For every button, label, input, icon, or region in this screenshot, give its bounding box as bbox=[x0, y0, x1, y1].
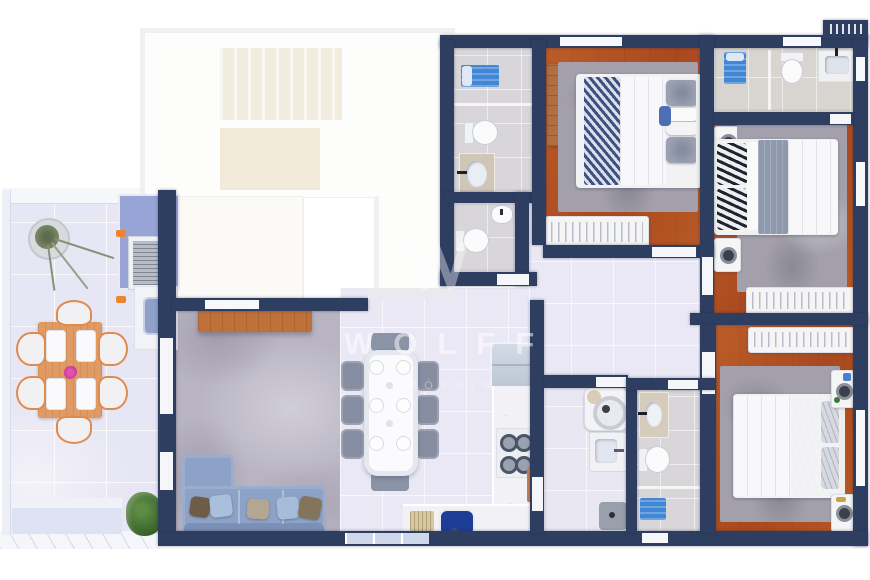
dish-rack bbox=[410, 511, 434, 531]
bath-right-towel bbox=[726, 53, 744, 61]
terrace-bench bbox=[12, 498, 122, 534]
master-wardrobe-hangers bbox=[754, 332, 850, 347]
window-east-3 bbox=[856, 410, 865, 486]
window-east-1 bbox=[856, 57, 865, 81]
master-decor-gold bbox=[836, 497, 846, 502]
wall-laundry-ensuite bbox=[626, 388, 637, 533]
laundry-sink bbox=[589, 432, 629, 472]
table-runner-dot bbox=[386, 382, 393, 389]
bedroom2-wardrobe-hangers bbox=[752, 292, 850, 309]
bath-right-basin bbox=[825, 56, 849, 74]
washing-machine bbox=[584, 387, 628, 431]
plate-2 bbox=[396, 360, 411, 375]
place-setting-2 bbox=[76, 330, 96, 362]
bath-top-towel bbox=[462, 66, 472, 86]
bedroom2-wardrobe bbox=[746, 287, 856, 315]
faint-room-b bbox=[303, 197, 375, 302]
plate-1 bbox=[369, 360, 384, 375]
window-north-bath-right bbox=[783, 37, 821, 46]
faint-bed bbox=[220, 128, 320, 190]
glass-door-living bbox=[345, 533, 429, 544]
door-laundry bbox=[596, 377, 626, 387]
bedroom1-accent-pillow bbox=[659, 106, 671, 126]
laundry-faucet bbox=[614, 449, 624, 452]
bath-top-glass bbox=[453, 103, 533, 106]
door-bedroom2 bbox=[702, 257, 713, 295]
window-north-bedroom1 bbox=[560, 37, 622, 46]
master-lamp-bottom bbox=[836, 505, 853, 522]
ensuite-toilet-bowl bbox=[645, 446, 670, 473]
plate-6 bbox=[396, 436, 411, 451]
sofa-pillow-blue-2 bbox=[276, 496, 300, 520]
master-duvet bbox=[733, 396, 791, 496]
wall-bedroom2-south bbox=[690, 313, 868, 325]
bedroom1-pillow-gray-1 bbox=[666, 80, 698, 106]
unfinished-area bbox=[140, 28, 455, 302]
ac-fins bbox=[830, 24, 864, 34]
patio-chair-right-1 bbox=[98, 332, 128, 366]
bath-right-toilet-bowl bbox=[781, 59, 803, 84]
ensuite-faucet bbox=[638, 412, 647, 415]
master-wardrobe bbox=[748, 327, 856, 353]
bedroom2-zebra-pillow-1 bbox=[716, 142, 748, 186]
master-pillow-2 bbox=[820, 446, 841, 490]
master-decor-blue bbox=[843, 373, 851, 381]
dining-chair-left-2 bbox=[341, 395, 364, 425]
plate-5 bbox=[369, 436, 384, 451]
bedroom1-striped-runner bbox=[584, 77, 620, 185]
wall-living-north bbox=[172, 298, 368, 311]
patio-chair-top bbox=[56, 300, 92, 326]
bath-top-faucet bbox=[457, 171, 467, 174]
bin-dot bbox=[609, 512, 615, 518]
waste-bin bbox=[597, 500, 629, 532]
sofa-pillow-blue-1 bbox=[209, 494, 234, 519]
faint-room-a bbox=[165, 196, 303, 302]
wall-bedroom1-west bbox=[532, 40, 546, 245]
place-setting-4 bbox=[76, 378, 96, 410]
bidet-dot bbox=[500, 209, 503, 215]
terrace-slider-door bbox=[160, 338, 173, 414]
bath-top-toilet-bowl bbox=[472, 120, 498, 145]
plate-3 bbox=[369, 398, 384, 413]
fridge-divider bbox=[492, 364, 530, 366]
master-decor-green bbox=[834, 397, 840, 403]
grill-knob-2 bbox=[116, 296, 126, 303]
console-table bbox=[198, 308, 312, 332]
bedroom2-duvet bbox=[788, 140, 838, 234]
faint-closet bbox=[220, 48, 342, 120]
dining-chair-right-3 bbox=[416, 429, 439, 459]
terrace-window-2 bbox=[160, 452, 173, 490]
ensuite-shower-mat bbox=[640, 498, 666, 520]
table-runner-dot-2 bbox=[386, 420, 393, 427]
bath-top-vanity bbox=[459, 153, 495, 195]
master-gray-blanket bbox=[785, 394, 825, 496]
patio-chair-left-1 bbox=[16, 332, 46, 366]
window-east-2 bbox=[856, 162, 865, 206]
terrace-bench-top bbox=[12, 498, 122, 508]
ensuite-vanity bbox=[639, 392, 669, 438]
place-setting-1 bbox=[46, 330, 66, 362]
patio-chair-right-2 bbox=[98, 376, 128, 410]
master-nightstand-top bbox=[831, 370, 855, 408]
washer-hub bbox=[602, 405, 610, 413]
bedroom1-wardrobe-hangers bbox=[551, 222, 643, 242]
bedroom1-duvet bbox=[620, 77, 666, 185]
sofa-cushion-seam-1 bbox=[238, 490, 240, 524]
bath-top-basin bbox=[466, 161, 487, 187]
master-nightstand-bottom bbox=[831, 494, 855, 532]
sofa-pillow-brown-2 bbox=[297, 495, 322, 520]
window-living-north bbox=[205, 300, 259, 309]
bedroom1-pillow-white-2 bbox=[666, 122, 698, 135]
dining-chair-left-1 bbox=[341, 361, 364, 391]
floor-plan-canvas: WOLFF IMÓVEIS bbox=[0, 0, 870, 580]
bedroom1-pillow-gray-2 bbox=[666, 137, 698, 163]
door-ensuite bbox=[668, 380, 698, 389]
bedroom2-zebra-pillow-2 bbox=[716, 187, 748, 231]
door-bath-right bbox=[830, 114, 851, 124]
bedroom2-nightstand-bottom bbox=[714, 238, 741, 272]
watermark-logo-icon bbox=[410, 242, 466, 290]
ensuite-shower-glass bbox=[637, 486, 703, 489]
bedroom2-gray-blanket bbox=[758, 140, 788, 234]
bath-right-glass bbox=[768, 50, 771, 110]
door-kitchen-laundry bbox=[532, 477, 543, 511]
bath-right-faucet bbox=[835, 47, 838, 56]
bedroom2-lamp-bottom bbox=[720, 247, 737, 264]
wall-south bbox=[158, 531, 868, 546]
master-headboard bbox=[839, 396, 845, 496]
sofa-pillow-beige bbox=[246, 498, 269, 519]
ensuite-basin bbox=[645, 402, 662, 427]
bath-hall-toilet-bowl bbox=[463, 228, 489, 253]
dining-chair-left-3 bbox=[341, 429, 364, 459]
door-bedroom1 bbox=[652, 247, 696, 257]
patio-chair-bottom bbox=[56, 416, 92, 444]
grill-knob-1 bbox=[116, 230, 126, 237]
dining-chair-right-2 bbox=[416, 395, 439, 425]
faint-wall-top bbox=[140, 28, 455, 33]
sofa-pillow-brown-1 bbox=[189, 496, 212, 519]
plate-4 bbox=[396, 398, 411, 413]
faint-divider bbox=[375, 196, 379, 300]
washer-drum bbox=[593, 396, 627, 430]
dining-bench-top bbox=[371, 333, 409, 351]
terrace-left-wall bbox=[2, 190, 11, 535]
place-setting-3 bbox=[46, 378, 66, 410]
door-bath-hall bbox=[497, 274, 529, 285]
dining-chair-right-1 bbox=[416, 361, 439, 391]
bidet bbox=[491, 205, 513, 224]
bath-right-vanity bbox=[818, 50, 856, 82]
ac-condenser-ledge bbox=[823, 20, 868, 38]
patio-chair-left-2 bbox=[16, 376, 46, 410]
window-south-ensuite bbox=[642, 533, 668, 543]
